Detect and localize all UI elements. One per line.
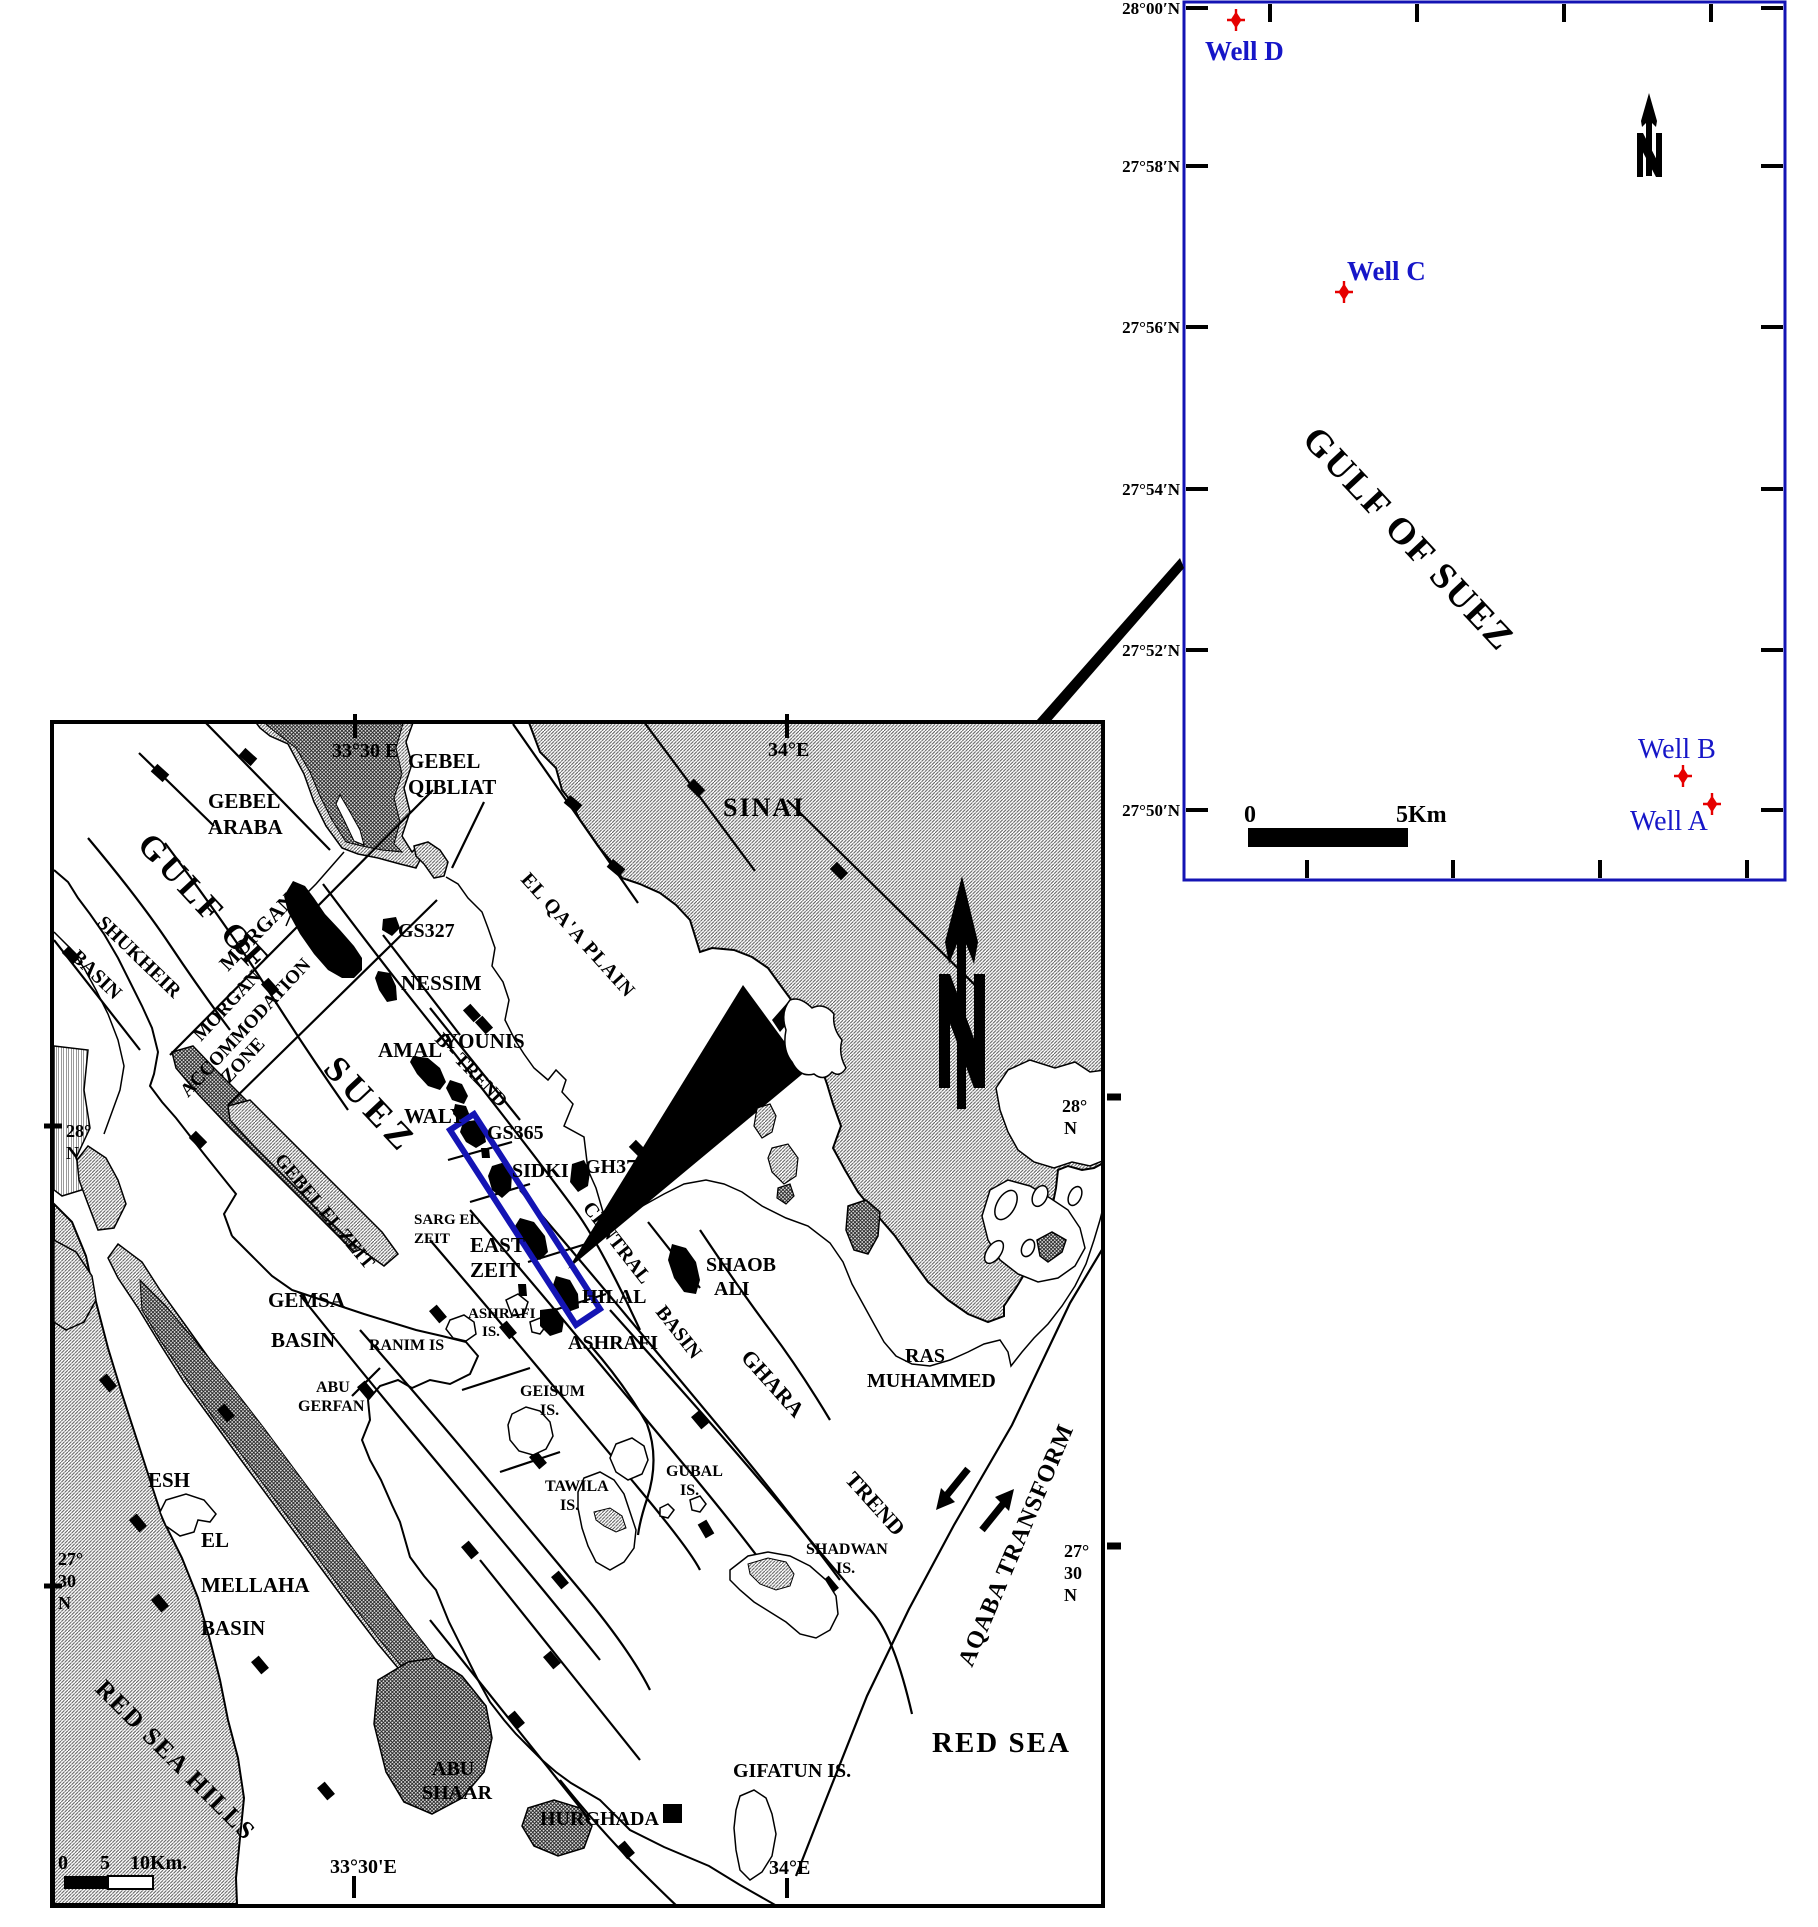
- svg-text:GEISUM: GEISUM: [520, 1383, 585, 1400]
- svg-text:33°30'E: 33°30'E: [330, 1856, 397, 1878]
- svg-text:HILAL: HILAL: [582, 1286, 646, 1308]
- svg-text:27°56′N: 27°56′N: [1122, 318, 1181, 337]
- svg-text:WALY: WALY: [404, 1104, 465, 1128]
- svg-text:Well D: Well D: [1205, 36, 1284, 66]
- svg-text:Well B: Well B: [1638, 734, 1716, 765]
- svg-text:MUHAMMED: MUHAMMED: [867, 1370, 996, 1392]
- svg-text:27°: 27°: [58, 1549, 83, 1569]
- svg-text:SIDKI: SIDKI: [512, 1160, 569, 1182]
- svg-text:34°E: 34°E: [768, 739, 809, 761]
- svg-text:NESSIM: NESSIM: [401, 971, 482, 995]
- svg-text:27°50′N: 27°50′N: [1122, 801, 1181, 820]
- svg-text:ASHRAFI: ASHRAFI: [568, 1332, 658, 1354]
- svg-text:QIBLIAT: QIBLIAT: [408, 775, 496, 799]
- svg-text:BASIN: BASIN: [201, 1616, 265, 1640]
- svg-text:GEBEL: GEBEL: [408, 749, 480, 773]
- svg-text:ABU: ABU: [316, 1379, 350, 1396]
- svg-text:28°: 28°: [1062, 1096, 1087, 1116]
- svg-text:0: 0: [58, 1852, 68, 1874]
- svg-text:TAWILA: TAWILA: [545, 1478, 609, 1495]
- svg-text:34°E: 34°E: [769, 1857, 810, 1879]
- svg-text:GIFATUN IS.: GIFATUN IS.: [733, 1760, 851, 1782]
- svg-text:27°52′N: 27°52′N: [1122, 641, 1181, 660]
- svg-text:GH37: GH37: [585, 1156, 636, 1178]
- svg-text:N: N: [1064, 1585, 1077, 1605]
- svg-text:ALI: ALI: [714, 1278, 750, 1300]
- svg-text:0: 0: [1244, 802, 1256, 828]
- svg-text:27°: 27°: [1064, 1541, 1089, 1561]
- svg-text:33°30 E: 33°30 E: [332, 740, 398, 762]
- svg-text:HURGHADA: HURGHADA: [540, 1808, 659, 1830]
- svg-text:IS.: IS.: [680, 1482, 699, 1499]
- svg-text:SHADWAN: SHADWAN: [806, 1541, 888, 1558]
- svg-text:IS.: IS.: [482, 1324, 500, 1340]
- svg-text:RED SEA: RED SEA: [932, 1727, 1071, 1759]
- svg-text:30: 30: [58, 1571, 76, 1591]
- svg-text:BASIN: BASIN: [271, 1328, 335, 1352]
- svg-text:SHAOB: SHAOB: [706, 1254, 776, 1276]
- svg-text:GERFAN: GERFAN: [298, 1398, 365, 1415]
- svg-text:GEBEL: GEBEL: [208, 789, 280, 813]
- svg-text:Well A: Well A: [1630, 806, 1709, 837]
- svg-text:MELLAHA: MELLAHA: [201, 1573, 310, 1597]
- svg-text:27°58′N: 27°58′N: [1122, 157, 1181, 176]
- svg-text:EAST: EAST: [470, 1233, 525, 1257]
- svg-text:28°: 28°: [66, 1121, 91, 1141]
- svg-text:RANIM IS: RANIM IS: [369, 1337, 444, 1354]
- svg-text:GS327: GS327: [398, 920, 455, 942]
- svg-text:5Km: 5Km: [1396, 802, 1447, 828]
- svg-text:30: 30: [1064, 1563, 1082, 1583]
- svg-text:SHAAR: SHAAR: [422, 1782, 493, 1804]
- svg-text:ZEIT: ZEIT: [470, 1258, 520, 1282]
- svg-text:ASHRAFI: ASHRAFI: [468, 1306, 536, 1322]
- svg-text:IS.: IS.: [836, 1560, 855, 1577]
- svg-text:Well C: Well C: [1347, 256, 1426, 286]
- svg-text:28°00′N: 28°00′N: [1122, 0, 1181, 18]
- svg-text:SARG EL: SARG EL: [414, 1212, 479, 1228]
- svg-text:SINAI: SINAI: [723, 793, 805, 822]
- svg-text:IS.: IS.: [540, 1402, 559, 1419]
- svg-text:ARABA: ARABA: [208, 815, 284, 839]
- svg-text:RAS: RAS: [905, 1345, 945, 1367]
- svg-text:N: N: [66, 1143, 79, 1163]
- svg-text:IS.: IS.: [560, 1497, 579, 1514]
- svg-text:27°54′N: 27°54′N: [1122, 480, 1181, 499]
- svg-text:10Km.: 10Km.: [130, 1852, 187, 1874]
- svg-text:ABU: ABU: [432, 1758, 474, 1780]
- svg-text:N: N: [1064, 1118, 1077, 1138]
- svg-text:GUBAL: GUBAL: [666, 1463, 723, 1480]
- svg-text:5: 5: [100, 1852, 110, 1874]
- svg-text:GEMSA: GEMSA: [268, 1288, 346, 1312]
- svg-text:GS365: GS365: [487, 1122, 544, 1144]
- svg-text:ESH: ESH: [148, 1468, 190, 1492]
- svg-text:N: N: [58, 1593, 71, 1613]
- svg-text:EL: EL: [201, 1528, 229, 1552]
- svg-text:ZEIT: ZEIT: [414, 1231, 450, 1247]
